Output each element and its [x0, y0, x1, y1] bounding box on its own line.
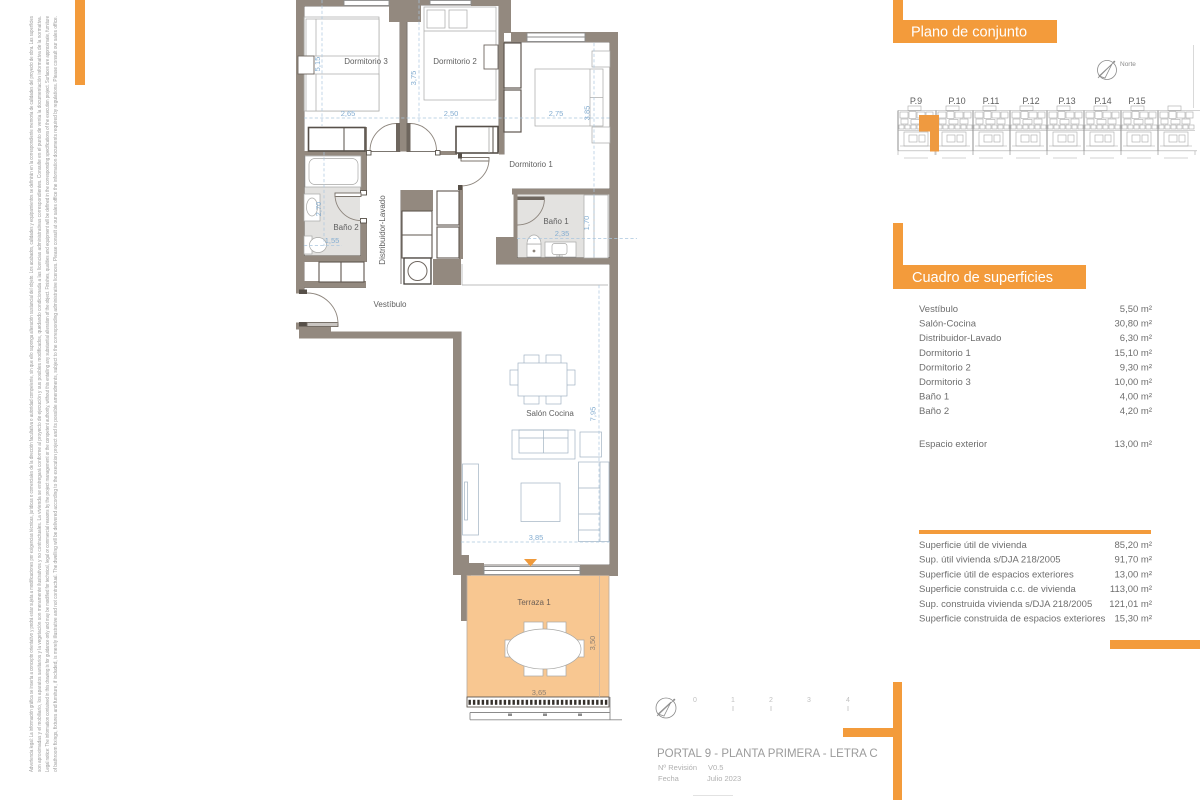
svg-text:5,50 m²: 5,50 m² [1120, 304, 1152, 315]
svg-text:V0.5: V0.5 [708, 763, 723, 772]
svg-text:Superficie construida c.c. de: Superficie construida c.c. de vivienda [919, 584, 1077, 595]
svg-text:15,30 m²: 15,30 m² [1115, 614, 1153, 625]
svg-text:Dormitorio 2: Dormitorio 2 [433, 57, 477, 66]
svg-text:2,35: 2,35 [555, 229, 570, 238]
svg-text:Legal notice: The information: Legal notice: The information contained … [45, 16, 51, 772]
svg-text:1: 1 [731, 697, 735, 704]
svg-text:3,50: 3,50 [588, 636, 597, 651]
svg-text:9,30 m²: 9,30 m² [1120, 362, 1152, 373]
svg-text:Norte: Norte [1120, 61, 1136, 68]
svg-text:P.9: P.9 [910, 96, 922, 106]
svg-text:Baño 2: Baño 2 [333, 223, 359, 232]
svg-text:3,85: 3,85 [583, 106, 592, 121]
svg-text:10,00 m²: 10,00 m² [1115, 377, 1153, 388]
svg-text:Distribuidor-Lavado: Distribuidor-Lavado [919, 333, 1001, 344]
svg-text:Advertencia legal: La informac: Advertencia legal: La información gráfic… [29, 16, 35, 772]
svg-text:3,85: 3,85 [529, 533, 544, 542]
svg-text:4,20 m²: 4,20 m² [1120, 406, 1152, 417]
svg-text:91,70 m²: 91,70 m² [1115, 555, 1153, 566]
svg-text:13,00 m²: 13,00 m² [1115, 569, 1153, 580]
svg-text:Espacio exterior: Espacio exterior [919, 439, 987, 450]
svg-text:1,70: 1,70 [582, 216, 591, 231]
svg-text:85,20 m²: 85,20 m² [1115, 540, 1153, 551]
svg-text:Julio 2023: Julio 2023 [707, 774, 741, 783]
svg-text:1,55: 1,55 [325, 236, 340, 245]
svg-text:Cuadro de superficies: Cuadro de superficies [912, 270, 1053, 286]
svg-text:Nº Revisión: Nº Revisión [658, 763, 697, 772]
svg-text:Fecha: Fecha [658, 774, 680, 783]
svg-text:5,15: 5,15 [313, 57, 322, 72]
svg-text:PORTAL 9 - PLANTA PRIMERA - LE: PORTAL 9 - PLANTA PRIMERA - LETRA C [657, 748, 878, 760]
svg-text:Superficie construida de espac: Superficie construida de espacios exteri… [919, 614, 1106, 625]
svg-text:13,00 m²: 13,00 m² [1115, 439, 1153, 450]
svg-text:Distribuidor-Lavado: Distribuidor-Lavado [378, 195, 387, 265]
svg-text:P.11: P.11 [983, 96, 1000, 106]
svg-text:Baño 1: Baño 1 [543, 217, 569, 226]
svg-text:Vestíbulo: Vestíbulo [919, 304, 958, 315]
svg-text:Vestíbulo: Vestíbulo [374, 300, 407, 309]
svg-text:Superficie útil de espacios ex: Superficie útil de espacios exteriores [919, 569, 1074, 580]
svg-text:Salón-Cocina: Salón-Cocina [919, 319, 977, 330]
svg-text:Plano de conjunto: Plano de conjunto [911, 25, 1027, 41]
svg-text:4: 4 [846, 697, 850, 704]
svg-text:P.13: P.13 [1058, 96, 1075, 106]
svg-text:3,65: 3,65 [532, 688, 547, 697]
svg-text:6,30 m²: 6,30 m² [1120, 333, 1152, 344]
svg-text:P.14: P.14 [1094, 96, 1111, 106]
svg-text:2,75: 2,75 [549, 109, 564, 118]
svg-text:4,00 m²: 4,00 m² [1120, 392, 1152, 403]
svg-text:3,75: 3,75 [409, 71, 418, 86]
svg-text:15,10 m²: 15,10 m² [1115, 348, 1153, 359]
svg-text:3: 3 [807, 697, 811, 704]
svg-text:Dormitorio 3: Dormitorio 3 [344, 57, 388, 66]
svg-text:7,95: 7,95 [589, 407, 598, 422]
svg-text:P.12: P.12 [1022, 96, 1039, 106]
svg-text:Baño 2: Baño 2 [919, 406, 949, 417]
svg-text:of bathroom fixings, fixtures: of bathroom fixings, fixtures and furnit… [53, 16, 59, 772]
svg-text:Baño 1: Baño 1 [919, 392, 949, 403]
svg-text:P.15: P.15 [1128, 96, 1145, 106]
svg-text:Dormitorio 3: Dormitorio 3 [919, 377, 971, 388]
svg-text:Salón Cocina: Salón Cocina [526, 409, 574, 418]
svg-text:2: 2 [769, 697, 773, 704]
svg-text:2,65: 2,65 [341, 109, 356, 118]
svg-text:Dormitorio 1: Dormitorio 1 [919, 348, 971, 359]
svg-text:30,80 m²: 30,80 m² [1115, 319, 1153, 330]
svg-text:121,01 m²: 121,01 m² [1109, 599, 1152, 610]
svg-text:2,70: 2,70 [314, 202, 323, 217]
svg-text:Terraza 1: Terraza 1 [517, 598, 551, 607]
svg-text:0: 0 [693, 697, 697, 704]
svg-text:Dormitorio 2: Dormitorio 2 [919, 362, 971, 373]
svg-text:Dormitorio 1: Dormitorio 1 [509, 160, 553, 169]
svg-text:2,50: 2,50 [444, 109, 459, 118]
svg-text:113,00 m²: 113,00 m² [1110, 584, 1152, 595]
svg-text:Sup. útil vivienda s/DJA 218/2: Sup. útil vivienda s/DJA 218/2005 [919, 555, 1061, 566]
svg-text:son aproximadas y el mobiliari: son aproximadas y el mobiliario, los apa… [37, 16, 43, 772]
svg-text:Superficie útil de vivienda: Superficie útil de vivienda [919, 540, 1027, 551]
svg-text:P.10: P.10 [948, 96, 965, 106]
svg-text:Sup. construida vivienda s/DJA: Sup. construida vivienda s/DJA 218/2005 [919, 599, 1092, 610]
